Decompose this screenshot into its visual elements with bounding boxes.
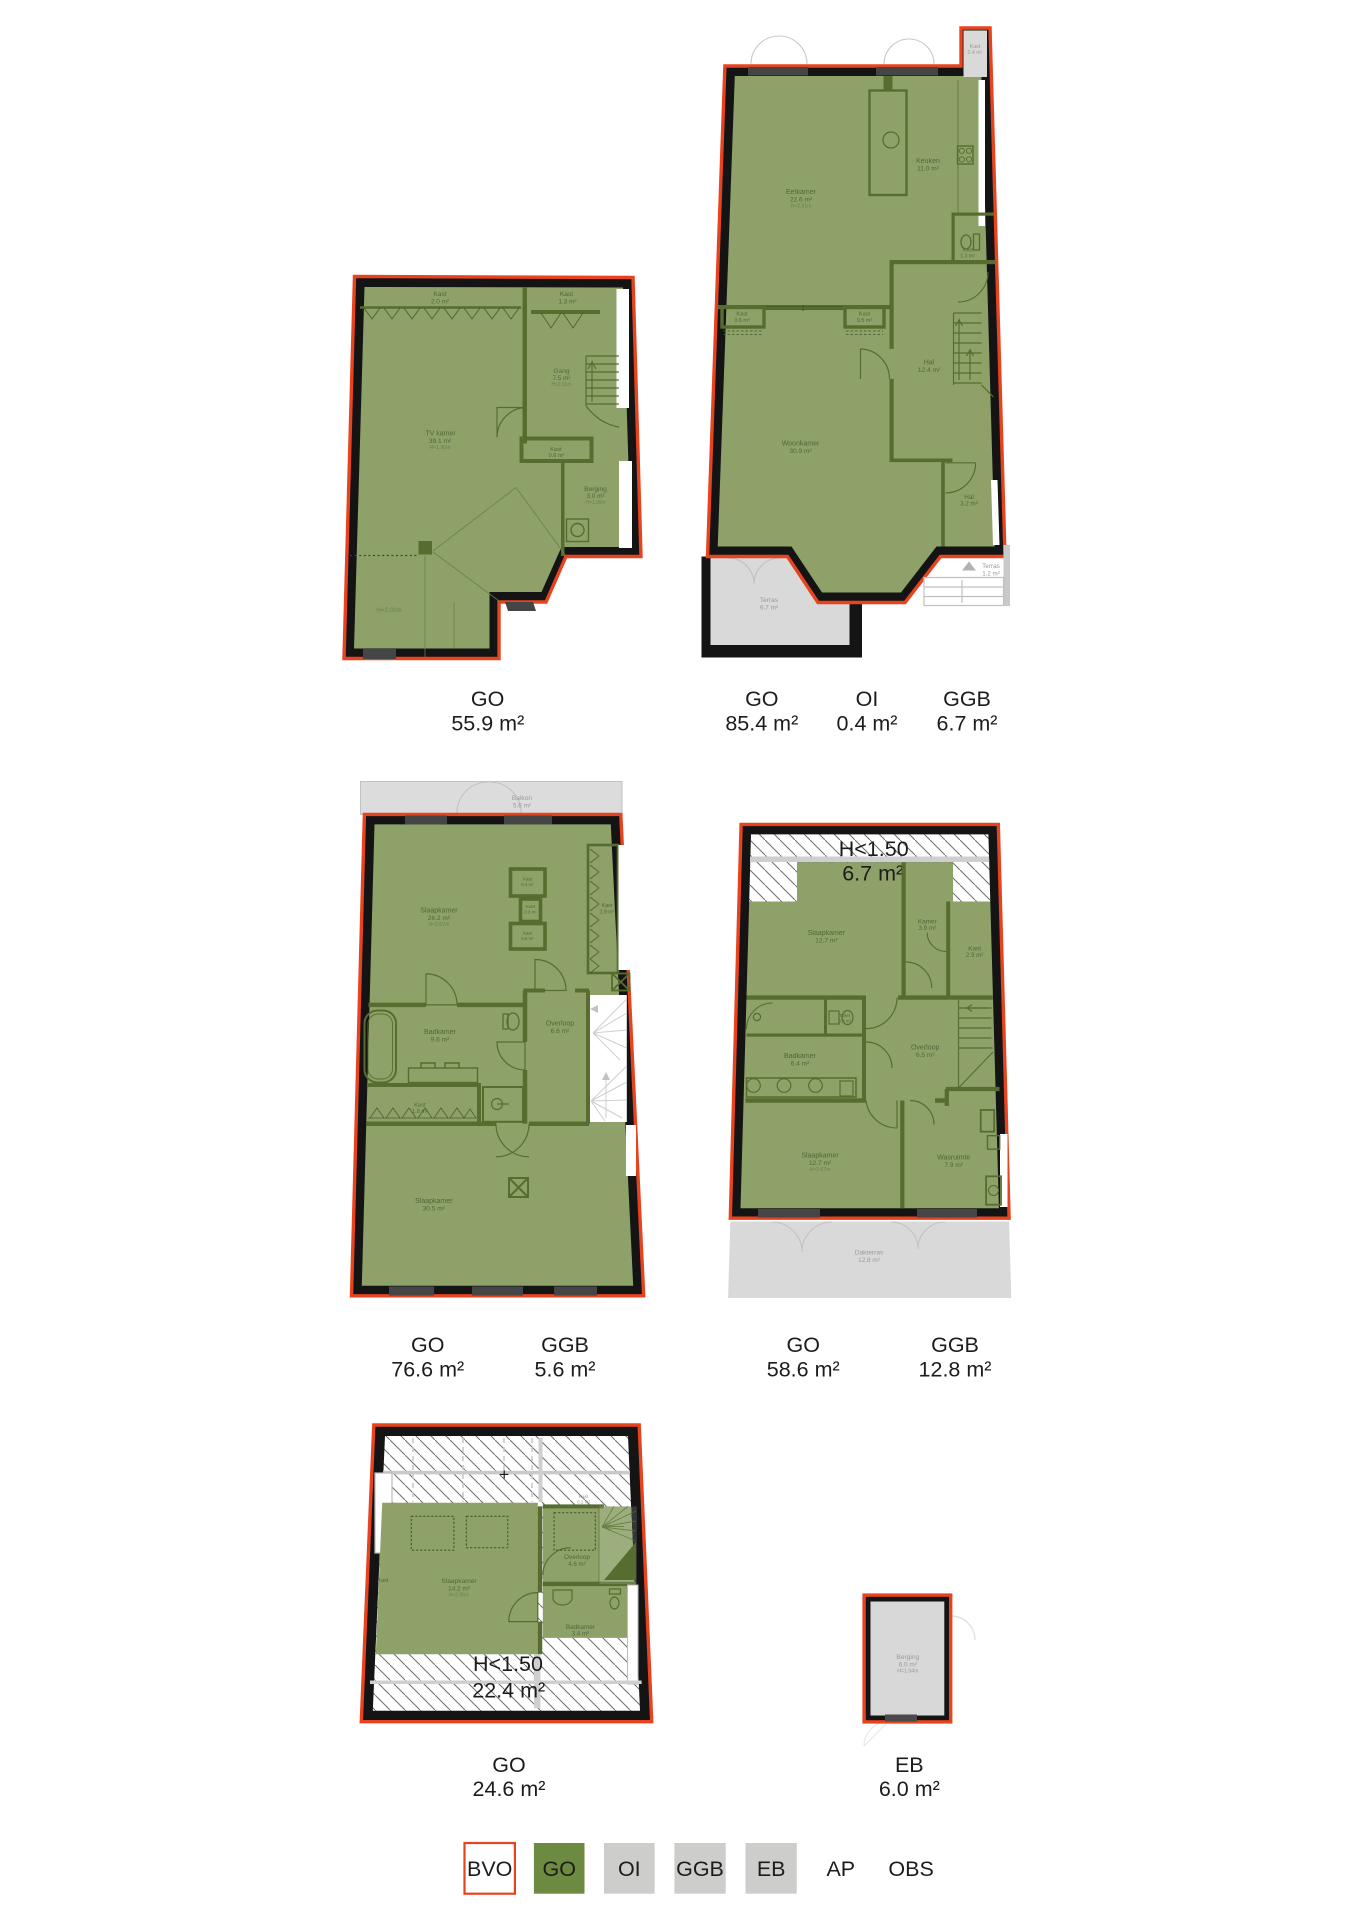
svg-text:Berging: Berging (896, 1654, 919, 1661)
svg-text:Kast: Kast (560, 291, 573, 298)
svg-text:GO: GO (786, 1333, 819, 1357)
svg-text:6.4 m²: 6.4 m² (791, 1060, 810, 1067)
svg-text:Kast: Kast (550, 447, 562, 453)
svg-text:Kast: Kast (736, 312, 748, 318)
svg-text:Kast: Kast (414, 1103, 426, 1109)
svg-text:OI: OI (856, 687, 879, 711)
svg-text:Slaapkamer: Slaapkamer (441, 1578, 477, 1585)
svg-text:30.9 m²: 30.9 m² (789, 448, 812, 455)
svg-text:AP: AP (826, 1857, 855, 1881)
svg-text:Kast: Kast (523, 877, 533, 882)
svg-text:Berging: Berging (584, 486, 607, 493)
svg-text:7.9 m²: 7.9 m² (944, 1162, 963, 1169)
svg-text:Terras: Terras (760, 597, 779, 604)
svg-text:12.8 m²: 12.8 m² (858, 1257, 880, 1264)
svg-text:Hal: Hal (924, 360, 935, 367)
svg-text:1.2 m²: 1.2 m² (982, 570, 1000, 577)
svg-text:H≈1.90m: H≈1.90m (429, 445, 450, 451)
svg-text:6.7 m²: 6.7 m² (760, 604, 778, 611)
svg-text:1.9 m²: 1.9 m² (600, 909, 615, 915)
svg-text:Slaapkamer: Slaapkamer (420, 908, 458, 915)
svg-text:GO: GO (745, 687, 778, 711)
svg-text:4.6 m²: 4.6 m² (568, 1561, 586, 1568)
svg-text:12.7 m²: 12.7 m² (809, 1160, 832, 1167)
svg-text:Wasruimte: Wasruimte (937, 1155, 970, 1162)
svg-text:6.5 m²: 6.5 m² (916, 1052, 935, 1059)
svg-text:Slaapkamer: Slaapkamer (415, 1198, 453, 1205)
svg-text:H=1.90m: H=1.90m (585, 500, 605, 506)
svg-text:Gang: Gang (553, 368, 569, 375)
svg-text:3.0 m²: 3.0 m² (586, 493, 604, 500)
svg-text:Kast: Kast (523, 931, 533, 936)
svg-text:0.4 m²: 0.4 m² (521, 882, 534, 887)
svg-text:GGB: GGB (931, 1333, 979, 1357)
svg-text:26.2 m²: 26.2 m² (428, 915, 451, 922)
svg-text:6.6 m²: 6.6 m² (551, 1028, 570, 1035)
svg-text:12.8 m²: 12.8 m² (919, 1357, 992, 1381)
svg-text:2.9 m²: 2.9 m² (966, 952, 984, 959)
svg-text:Slaapkamer: Slaapkamer (801, 1153, 839, 1160)
svg-text:Kast: Kast (859, 312, 871, 318)
svg-text:3.2 m²: 3.2 m² (960, 501, 978, 508)
svg-text:3.9 m²: 3.9 m² (919, 925, 937, 932)
svg-text:39.1 m²: 39.1 m² (429, 438, 452, 445)
svg-text:H≈2.01m: H≈2.01m (551, 382, 571, 388)
svg-text:6.0 m²: 6.0 m² (879, 1777, 940, 1801)
svg-text:12.7 m²: 12.7 m² (815, 937, 838, 944)
svg-text:58.6 m²: 58.6 m² (767, 1357, 840, 1381)
svg-text:Badkamer: Badkamer (424, 1029, 457, 1036)
svg-text:GGB: GGB (676, 1857, 724, 1881)
svg-text:6.0 m²: 6.0 m² (899, 1661, 917, 1668)
svg-text:9.6 m²: 9.6 m² (431, 1036, 450, 1043)
svg-text:14.2 m²: 14.2 m² (448, 1585, 470, 1592)
svg-text:OBS: OBS (888, 1857, 933, 1881)
svg-text:5.6 m²: 5.6 m² (513, 802, 531, 809)
svg-text:Eetkamer: Eetkamer (786, 189, 817, 196)
svg-text:Dakterras: Dakterras (855, 1250, 884, 1257)
svg-text:TV kamer: TV kamer (425, 431, 456, 438)
svg-text:GO: GO (471, 687, 504, 711)
svg-text:0.6 m²: 0.6 m² (549, 453, 565, 459)
svg-text:Kast: Kast (526, 904, 536, 909)
svg-text:GGB: GGB (943, 687, 991, 711)
svg-text:11.0 m²: 11.0 m² (917, 165, 940, 172)
svg-text:0.4 m²: 0.4 m² (968, 50, 983, 56)
svg-text:6.7 m²: 6.7 m² (937, 711, 998, 735)
svg-text:5.6 m²: 5.6 m² (535, 1357, 596, 1381)
svg-text:Toilet: Toilet (839, 1013, 850, 1018)
svg-text:0.5 m²: 0.5 m² (521, 936, 534, 941)
svg-text:H≈2.91m: H≈2.91m (790, 203, 811, 209)
svg-text:H≈2.67m: H≈2.67m (809, 1167, 830, 1173)
svg-text:H≈2.96m: H≈2.96m (449, 1592, 469, 1598)
svg-text:12.4 m²: 12.4 m² (918, 367, 941, 374)
svg-text:GO: GO (542, 1857, 575, 1881)
svg-text:H≈2.67m: H≈2.67m (428, 922, 449, 928)
svg-text:Woonkamer: Woonkamer (782, 441, 820, 448)
svg-text:Kast: Kast (378, 1578, 389, 1584)
svg-text:85.4 m²: 85.4 m² (725, 711, 798, 735)
svg-text:1.3 m²: 1.3 m² (558, 298, 576, 305)
svg-text:6.7 m²: 6.7 m² (842, 862, 903, 886)
svg-text:0.3 m²: 0.3 m² (524, 910, 537, 915)
svg-text:+: + (499, 1465, 509, 1484)
svg-text:0.6 m²: 0.6 m² (734, 318, 749, 324)
svg-text:H<1.50: H<1.50 (473, 1652, 543, 1676)
svg-text:GO: GO (492, 1753, 525, 1777)
svg-text:Kast: Kast (433, 291, 446, 298)
svg-text:Kast: Kast (602, 903, 613, 909)
svg-text:1.0 m²: 1.0 m² (960, 254, 975, 260)
svg-text:H<1.50: H<1.50 (839, 837, 909, 861)
svg-text:Keuken: Keuken (916, 158, 940, 165)
svg-text:76.6 m²: 76.6 m² (391, 1357, 464, 1381)
svg-text:GGB: GGB (541, 1333, 589, 1357)
svg-text:0.2 m²: 0.2 m² (577, 1500, 590, 1505)
svg-text:H=2.02m: H=2.02m (376, 607, 401, 614)
svg-text:0.8 m²: 0.8 m² (838, 1018, 851, 1023)
svg-text:Slaapkamer: Slaapkamer (808, 930, 846, 937)
svg-text:EB: EB (895, 1753, 924, 1777)
svg-text:1.8 m²: 1.8 m² (412, 1109, 428, 1115)
svg-text:Balkon: Balkon (512, 795, 532, 802)
svg-text:BVO: BVO (467, 1857, 512, 1881)
svg-text:EB: EB (757, 1857, 786, 1881)
svg-text:22.6 m²: 22.6 m² (790, 196, 813, 203)
svg-text:30.5 m²: 30.5 m² (423, 1205, 446, 1212)
svg-text:0.4 m²: 0.4 m² (837, 711, 898, 735)
svg-text:24.6 m²: 24.6 m² (473, 1777, 546, 1801)
svg-text:3.4 m²: 3.4 m² (572, 1631, 590, 1638)
svg-text:2.0 m²: 2.0 m² (431, 298, 449, 305)
svg-text:Overloop: Overloop (911, 1045, 940, 1052)
svg-text:7.5 m²: 7.5 m² (552, 375, 570, 382)
svg-text:H=1.94m: H=1.94m (897, 1668, 918, 1674)
svg-text:GO: GO (411, 1333, 444, 1357)
svg-text:55.9 m²: 55.9 m² (451, 711, 524, 735)
svg-text:Badkamer: Badkamer (784, 1053, 817, 1060)
svg-text:Overloop: Overloop (546, 1021, 575, 1028)
svg-text:0.5 m²: 0.5 m² (857, 318, 872, 324)
svg-text:22.4 m²: 22.4 m² (472, 1679, 545, 1703)
svg-text:OI: OI (618, 1857, 641, 1881)
svg-text:Terras: Terras (982, 563, 1000, 570)
